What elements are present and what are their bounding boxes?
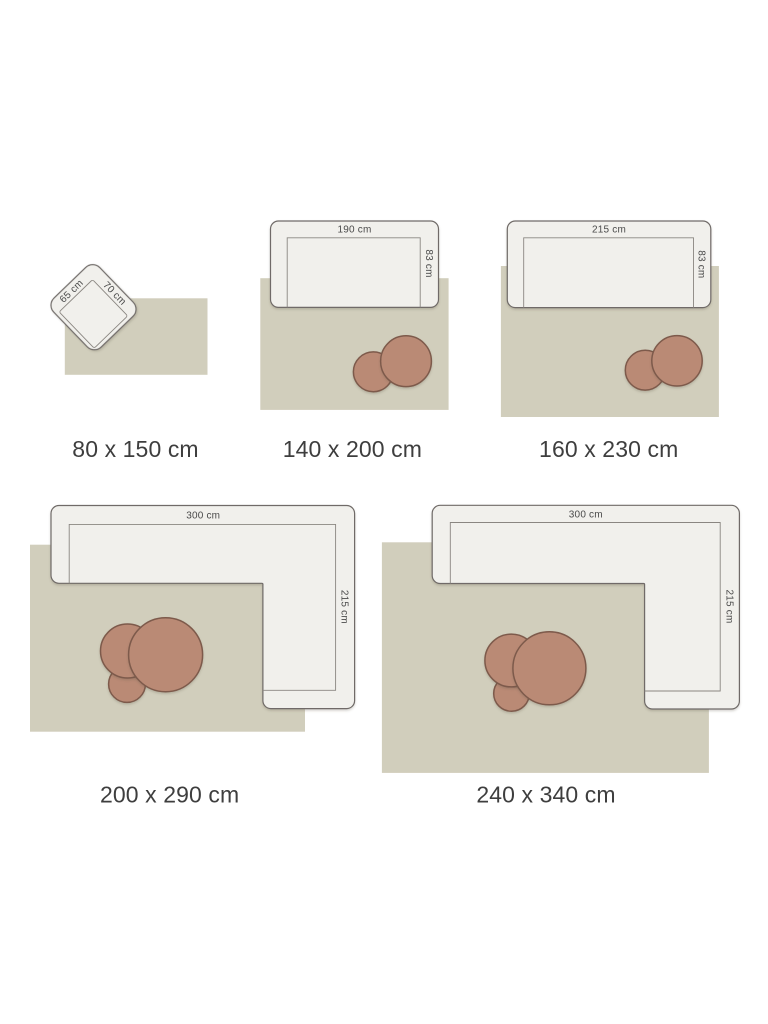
svg-text:80 x 150 cm: 80 x 150 cm	[72, 436, 198, 462]
svg-text:240 x 340 cm: 240 x 340 cm	[476, 782, 615, 808]
svg-text:190 cm: 190 cm	[338, 225, 372, 236]
svg-text:215 cm: 215 cm	[723, 590, 734, 624]
svg-text:83 cm: 83 cm	[696, 250, 707, 278]
svg-text:300 cm: 300 cm	[569, 510, 603, 521]
svg-text:300 cm: 300 cm	[186, 510, 220, 521]
svg-text:200 x 290 cm: 200 x 290 cm	[100, 782, 239, 808]
svg-text:215 cm: 215 cm	[592, 225, 626, 236]
svg-text:215 cm: 215 cm	[339, 590, 350, 624]
svg-text:140 x 200 cm: 140 x 200 cm	[283, 436, 422, 462]
svg-text:83 cm: 83 cm	[423, 249, 434, 277]
svg-text:160 x 230 cm: 160 x 230 cm	[539, 436, 678, 462]
